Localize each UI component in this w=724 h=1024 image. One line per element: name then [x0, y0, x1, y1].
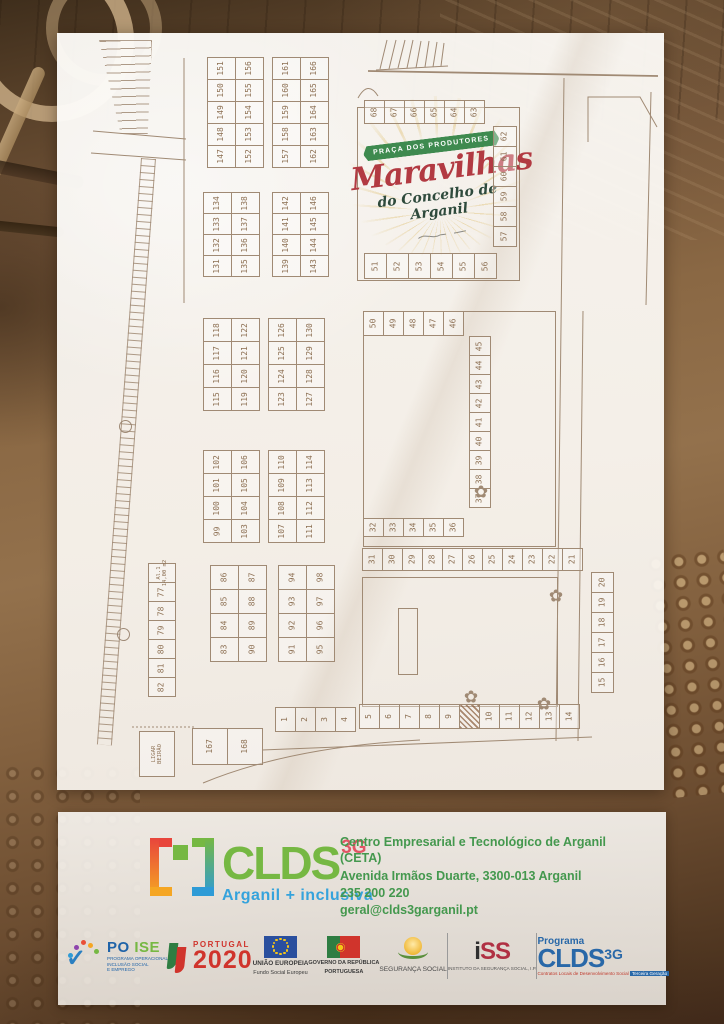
stall-group-g46-50: 5049484746	[363, 311, 464, 336]
po-ise-subtitle: PROGRAMA OPERACIONAL INCLUSÃO SOCIAL E E…	[107, 956, 168, 973]
stall-124: 124	[268, 364, 297, 388]
stall-59: 59	[493, 186, 517, 207]
stall-hatched	[459, 704, 480, 729]
stall-group-g123-130: 126125124123130129128127	[268, 318, 325, 411]
stall-165: 165	[300, 79, 329, 102]
stall-36: 36	[443, 518, 464, 537]
stall-153: 153	[235, 123, 264, 146]
stall-149: 149	[207, 101, 236, 124]
stall-43: 43	[469, 374, 491, 394]
stall-148: 148	[207, 123, 236, 146]
stall-110: 110	[268, 450, 297, 474]
stall-111: 111	[296, 519, 325, 543]
stall-123: 123	[268, 387, 297, 411]
stall-146: 146	[300, 192, 329, 214]
partner-logos-row: ✓ PO ISE PROGRAMA OPERACIONAL INCLUSÃO S…	[66, 920, 658, 992]
stall-49: 49	[383, 311, 404, 336]
stall-131: 131	[203, 255, 232, 277]
stall-115: 115	[203, 387, 232, 411]
stall-64: 64	[444, 100, 465, 124]
stall-154: 154	[235, 101, 264, 124]
stall-group-g15-20: 201918171615	[591, 572, 614, 693]
stall-97: 97	[306, 589, 335, 614]
stall-68: 68	[364, 100, 385, 124]
stall-162: 162	[300, 145, 329, 168]
stall-8: 8	[419, 704, 440, 729]
iss-label: INSTITUTO DA SEGURANÇA SOCIAL, I.P.	[448, 966, 537, 972]
stall-107: 107	[268, 519, 297, 543]
stall-87: 87	[238, 565, 267, 590]
stall-86: 86	[210, 565, 239, 590]
stall-126: 126	[268, 318, 297, 342]
stall-134: 134	[203, 192, 232, 214]
stall-112: 112	[296, 496, 325, 520]
stall-158: 158	[272, 123, 301, 146]
stall-114: 114	[296, 450, 325, 474]
stage-outline	[398, 608, 418, 675]
programa-clds-logo: Programa CLDS3G Contratos Locais de Dese…	[537, 936, 669, 977]
stall-17: 17	[591, 632, 614, 653]
stall-94: 94	[278, 565, 307, 590]
stall-109: 109	[268, 473, 297, 497]
stall-93: 93	[278, 589, 307, 614]
stall-119: 119	[231, 387, 260, 411]
stall-41: 41	[469, 412, 491, 432]
stall-18: 18	[591, 612, 614, 633]
stall-3: 3	[315, 707, 336, 732]
stall-127: 127	[296, 387, 325, 411]
stall-58: 58	[493, 206, 517, 227]
tree-icon: ✿	[537, 696, 551, 713]
stall-33: 33	[383, 518, 404, 537]
stall-79: 79	[148, 620, 176, 640]
stall-101: 101	[203, 473, 232, 497]
stall-15: 15	[591, 672, 614, 693]
stall-48: 48	[403, 311, 424, 336]
stall-11: 11	[499, 704, 520, 729]
programa-caption-blue: Terceira Geração	[630, 971, 669, 976]
stall-group-g77-82: Al.1 14,00 m2777879808182	[148, 563, 176, 697]
stall-group-g107-114: 110109108107114113112111	[268, 450, 325, 543]
stall-7: 7	[399, 704, 420, 729]
stall-34: 34	[403, 518, 424, 537]
stall-42: 42	[469, 393, 491, 413]
stall-6: 6	[379, 704, 400, 729]
iss-logo: iSS INSTITUTO DA SEGURANÇA SOCIAL, I.P.	[448, 940, 537, 972]
poster-photo: PRAÇA DOS PRODUTORES Maravilhas do Conce…	[0, 0, 724, 1024]
stall-61: 61	[493, 146, 517, 167]
stall-144: 144	[300, 234, 329, 256]
stall-2: 2	[295, 707, 316, 732]
stall-143: 143	[300, 255, 329, 277]
po-ise-logo: ✓ PO ISE PROGRAMA OPERACIONAL INCLUSÃO S…	[66, 938, 168, 974]
stall-81: 81	[148, 658, 176, 678]
programa-3g-badge: 3G	[604, 946, 623, 962]
stall-167: 167	[192, 728, 228, 765]
footer-panel: CLDS3G Arganil + inclusiva Centro Empres…	[58, 812, 666, 1005]
stall-150: 150	[207, 79, 236, 102]
stall-89: 89	[238, 613, 267, 638]
stall-142: 142	[272, 192, 301, 214]
stall-130: 130	[296, 318, 325, 342]
stall-133: 133	[203, 213, 232, 235]
stall-90: 90	[238, 637, 267, 662]
contact-venue: Centro Empresarial e Tecnológico de Arga…	[340, 834, 608, 867]
stall-168: 168	[227, 728, 263, 765]
stall-139: 139	[272, 255, 301, 277]
stall-140: 140	[272, 234, 301, 256]
stall-32: 32	[363, 518, 384, 537]
stall-group-g115-122: 118117116115122121120119	[203, 318, 260, 411]
portugal-2020-logo: PORTUGAL 2020	[168, 940, 253, 973]
tree-icon: ✿	[464, 689, 478, 706]
stall-group-g57-62: 626160595857	[493, 126, 517, 247]
pt-2020-label: 2020	[193, 949, 253, 973]
stall-80: 80	[148, 639, 176, 659]
stall-122: 122	[231, 318, 260, 342]
stall-57: 57	[493, 226, 517, 247]
tree-icon: ✿	[474, 484, 488, 501]
stall-9: 9	[439, 704, 460, 729]
stall-128: 128	[296, 364, 325, 388]
stall-99: 99	[203, 519, 232, 543]
ue-sublabel: Fundo Social Europeu	[253, 970, 307, 977]
stall-152: 152	[235, 145, 264, 168]
stall-105: 105	[231, 473, 260, 497]
portuguesa-label: PORTUGUESA	[324, 969, 363, 976]
stall-20: 20	[591, 572, 614, 593]
stall-50: 50	[363, 311, 384, 336]
stall-161: 161	[272, 57, 301, 80]
bottom-plaza-outline	[362, 577, 558, 707]
contact-address: Avenida Irmãos Duarte, 3300-013 Arganil	[340, 868, 608, 884]
portugal-flag-icon	[327, 936, 360, 958]
stall-22: 22	[542, 548, 563, 571]
stall-65: 65	[424, 100, 445, 124]
stall-138: 138	[231, 192, 260, 214]
stall-141: 141	[272, 213, 301, 235]
stall-19: 19	[591, 592, 614, 613]
stall-82: 82	[148, 677, 176, 697]
mid-plaza-outline	[363, 311, 556, 547]
stall-46: 46	[443, 311, 464, 336]
stall-166: 166	[300, 57, 329, 80]
stall-67: 67	[384, 100, 405, 124]
stall-group-ligar-beirao: LIGAR BEIRÃO	[139, 731, 175, 777]
stall-100: 100	[203, 496, 232, 520]
stall-group-g21-31: 3130292827262524232221	[362, 548, 583, 571]
stall-40: 40	[469, 431, 491, 451]
stall-53: 53	[408, 253, 431, 279]
stall-group-g91-98: 9493929198979695	[278, 565, 335, 662]
clds-name: CLDS	[222, 837, 339, 889]
stall-117: 117	[203, 341, 232, 365]
stall-125: 125	[268, 341, 297, 365]
stall-14: 14	[559, 704, 580, 729]
stall-116: 116	[203, 364, 232, 388]
stall-155: 155	[235, 79, 264, 102]
stall-120: 120	[231, 364, 260, 388]
stall-16: 16	[591, 652, 614, 673]
stall-group-g167-168: 167168	[192, 728, 263, 765]
contact-phone: 235 200 220	[340, 885, 608, 901]
ise-label: ISE	[134, 939, 160, 956]
stall-56: 56	[474, 253, 497, 279]
iss-icon: iSS	[474, 940, 510, 964]
stall-108: 108	[268, 496, 297, 520]
stall-44: 44	[469, 355, 491, 375]
stall-30: 30	[382, 548, 403, 571]
stall-129: 129	[296, 341, 325, 365]
stall-group-g131-138: 134133132131138137136135	[203, 192, 260, 277]
stall-60: 60	[493, 166, 517, 187]
po-label: PO	[107, 939, 130, 956]
stall-35: 35	[423, 518, 444, 537]
stall-51: 51	[364, 253, 387, 279]
stall-84: 84	[210, 613, 239, 638]
programa-caption-red: Contratos Locais de Desenvolvimento Soci…	[537, 971, 628, 976]
stall-98: 98	[306, 565, 335, 590]
stall-10: 10	[479, 704, 500, 729]
stall-83: 83	[210, 637, 239, 662]
stall-5: 5	[359, 704, 380, 729]
stall-95: 95	[306, 637, 335, 662]
stall-88: 88	[238, 589, 267, 614]
stall-25: 25	[482, 548, 503, 571]
stall-137: 137	[231, 213, 260, 235]
stall-118: 118	[203, 318, 232, 342]
po-ise-icon: ✓	[66, 938, 102, 974]
knife-handle	[0, 220, 64, 237]
stall-45: 45	[469, 336, 491, 356]
stall-1: 1	[275, 707, 296, 732]
stall-163: 163	[300, 123, 329, 146]
stall-151: 151	[207, 57, 236, 80]
stall-group-g51-56: 515253545556	[364, 253, 497, 279]
stall-113: 113	[296, 473, 325, 497]
stall-103: 103	[231, 519, 260, 543]
stall-4: 4	[335, 707, 356, 732]
rope-strand	[0, 65, 47, 189]
stall-159: 159	[272, 101, 301, 124]
contact-block: Centro Empresarial e Tecnológico de Arga…	[340, 834, 608, 919]
stall-160: 160	[272, 79, 301, 102]
stall-21: 21	[562, 548, 583, 571]
stall-157: 157	[272, 145, 301, 168]
stall-group-g83-90: 8685848387888990	[210, 565, 267, 662]
stall-group-g139-146: 142141140139146145144143	[272, 192, 329, 277]
stall-23: 23	[522, 548, 543, 571]
stall-66: 66	[404, 100, 425, 124]
stall-96: 96	[306, 613, 335, 638]
portugal-2020-icon	[168, 941, 188, 971]
stall-29: 29	[402, 548, 423, 571]
stall-26: 26	[462, 548, 483, 571]
stall-group-g63-68: 686766656463	[364, 100, 485, 124]
stall-164: 164	[300, 101, 329, 124]
governo-portugal-logo: GOVERNO DA REPÚBLICA PORTUGUESA	[308, 936, 379, 976]
stall-54: 54	[430, 253, 453, 279]
tree-icon: ✿	[549, 588, 563, 605]
stall-group-g147-156: 151150149148147156155154153152	[207, 57, 264, 168]
uniao-europeia-logo: UNIÃO EUROPEIA Fundo Social Europeu	[253, 936, 309, 977]
stall-47: 47	[423, 311, 444, 336]
stall-63: 63	[464, 100, 485, 124]
stall-27: 27	[442, 548, 463, 571]
stall-62: 62	[493, 126, 517, 147]
stall-24: 24	[502, 548, 523, 571]
stall-39: 39	[469, 450, 491, 470]
stall-group-g32-36: 3233343536	[363, 518, 464, 537]
stall-145: 145	[300, 213, 329, 235]
eu-flag-icon	[264, 936, 297, 958]
stall-ligar-beir-o: LIGAR BEIRÃO	[139, 731, 175, 777]
clds-brackets-icon	[150, 838, 214, 896]
stall-31: 31	[362, 548, 383, 571]
stall-106: 106	[231, 450, 260, 474]
stall-group-g157-166: 161160159158157166165164163162	[272, 57, 329, 168]
stall-104: 104	[231, 496, 260, 520]
stall-135: 135	[231, 255, 260, 277]
stall-55: 55	[452, 253, 475, 279]
stall-121: 121	[231, 341, 260, 365]
stall-al-1-14-00-m2: Al.1 14,00 m2	[148, 563, 176, 583]
stall-147: 147	[207, 145, 236, 168]
stall-group-g99-106: 10210110099106105104103	[203, 450, 260, 543]
stall-91: 91	[278, 637, 307, 662]
ue-label: UNIÃO EUROPEIA	[253, 960, 309, 968]
stall-92: 92	[278, 613, 307, 638]
seguranca-social-icon	[397, 937, 429, 963]
programa-clds-name: CLDS	[537, 943, 604, 973]
stall-52: 52	[386, 253, 409, 279]
stall-132: 132	[203, 234, 232, 256]
stall-78: 78	[148, 601, 176, 621]
stall-136: 136	[231, 234, 260, 256]
governo-label: GOVERNO DA REPÚBLICA	[308, 960, 379, 967]
stall-85: 85	[210, 589, 239, 614]
stall-28: 28	[422, 548, 443, 571]
stall-group-g1-4: 1234	[275, 707, 356, 732]
seguranca-social-label: SEGURANÇA SOCIAL	[379, 966, 446, 974]
stall-156: 156	[235, 57, 264, 80]
seguranca-social-logo: SEGURANÇA SOCIAL	[379, 937, 446, 974]
stall-102: 102	[203, 450, 232, 474]
contact-email: geral@clds3garganil.pt	[340, 902, 608, 918]
